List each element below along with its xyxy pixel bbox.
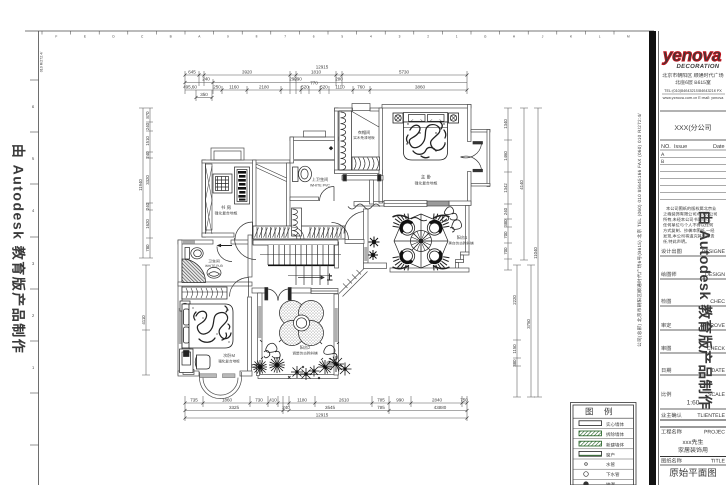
svg-text:xxx先生: xxx先生 (682, 438, 703, 446)
svg-text:11940: 11940 (138, 179, 143, 191)
svg-text:公司(总部) 北京市朝阳区顺通时代广场6号(B615) 北: 公司(总部) 北京市朝阳区顺通时代广场6号(B615) 北京 TEL (060)… (637, 113, 642, 347)
svg-text:1810: 1810 (311, 70, 322, 75)
svg-text:1160: 1160 (229, 85, 239, 90)
svg-text:410: 410 (269, 398, 277, 403)
svg-text:北京市朝阳区 顺通时代广场: 北京市朝阳区 顺通时代广场 (662, 72, 723, 79)
svg-text:强化复合地板: 强化复合地板 (218, 359, 240, 364)
svg-text:书 房: 书 房 (221, 205, 232, 210)
svg-text:XXX(分公司: XXX(分公司 (674, 124, 711, 132)
svg-text:比例: 比例 (661, 391, 671, 398)
svg-text:PROJEC: PROJEC (704, 430, 725, 436)
svg-text:1110: 1110 (335, 85, 345, 90)
svg-text:原始平面图: 原始平面图 (669, 468, 717, 479)
svg-text:www.yenova.com.cn E-mail: yen: www.yenova.com.cn E-mail: yenova (663, 96, 725, 100)
svg-text:TITLE: TITLE (711, 459, 726, 465)
svg-text:上卫生间: 上卫生间 (312, 177, 329, 182)
svg-text:DECORATION: DECORATION (677, 63, 720, 70)
svg-text:3920: 3920 (242, 70, 253, 75)
svg-text:780: 780 (145, 244, 150, 252)
svg-text:735: 735 (190, 398, 198, 403)
svg-text:520: 520 (320, 85, 328, 90)
svg-text:衣帽间: 衣帽间 (358, 130, 371, 135)
svg-text:L: L (599, 35, 601, 39)
svg-text:6: 6 (313, 35, 315, 39)
svg-text:窗户: 窗户 (606, 453, 615, 458)
svg-text:240: 240 (145, 202, 150, 210)
svg-text:强化复合地板: 强化复合地板 (215, 211, 238, 216)
svg-text:380: 380 (503, 219, 508, 227)
svg-text:F: F (55, 35, 57, 39)
svg-text:4: 4 (370, 35, 372, 39)
svg-text:阳台1: 阳台1 (457, 235, 468, 240)
svg-text:yenova: yenova (662, 45, 722, 65)
svg-text:9: 9 (227, 35, 229, 39)
svg-text:4140: 4140 (519, 180, 524, 190)
svg-text:由 Autodesk 教育版产品制作: 由 Autodesk 教育版产品制作 (11, 144, 27, 355)
svg-text:黑白仿古砖斜铺: 黑白仿古砖斜铺 (448, 241, 474, 246)
svg-text:240: 240 (202, 77, 210, 82)
svg-text:拆除墙体: 拆除墙体 (606, 432, 624, 437)
svg-text:1510: 1510 (145, 136, 150, 146)
svg-text:业主确认: 业主确认 (661, 412, 683, 419)
svg-text:770: 770 (310, 81, 318, 86)
svg-text:4110: 4110 (141, 315, 146, 325)
svg-text:例: 例 (604, 407, 613, 417)
svg-text:2610: 2610 (339, 398, 350, 403)
svg-text:290: 290 (294, 77, 302, 82)
svg-text:E: E (84, 35, 86, 39)
svg-text:强化复合地板: 强化复合地板 (415, 181, 438, 186)
svg-text:TEL:(010)84643215/84643216 FX: TEL:(010)84643215/84643216 FX (664, 89, 722, 93)
svg-text:新建墙体: 新建墙体 (606, 442, 624, 447)
svg-text:下水管: 下水管 (606, 472, 620, 477)
svg-text:设计出图: 设计出图 (661, 248, 682, 255)
svg-text:3860: 3860 (415, 85, 426, 90)
svg-text:WHITE PVC: WHITE PVC (310, 184, 330, 188)
svg-text:实木免漆地板: 实木免漆地板 (353, 135, 375, 140)
svg-text:卫生间: 卫生间 (208, 259, 220, 264)
svg-text:调整仿古砖斜铺: 调整仿古砖斜铺 (292, 351, 318, 356)
svg-text:645: 645 (188, 70, 196, 75)
svg-text:240: 240 (282, 405, 290, 410)
svg-text:3545: 3545 (325, 405, 336, 410)
svg-text:2840: 2840 (432, 398, 443, 403)
svg-text:12915: 12915 (316, 413, 329, 418)
svg-text:350: 350 (200, 92, 208, 97)
svg-text:工程名称: 工程名称 (661, 429, 682, 436)
svg-text:阳台2: 阳台2 (300, 345, 311, 350)
svg-text:任,特此声明。: 任,特此声明。 (663, 239, 689, 244)
svg-text:43880: 43880 (434, 405, 447, 410)
svg-text:3: 3 (399, 35, 401, 39)
svg-text:3325: 3325 (229, 405, 240, 410)
svg-text:1860: 1860 (222, 398, 233, 403)
svg-text:11040: 11040 (533, 247, 538, 259)
svg-text:240: 240 (503, 207, 508, 215)
svg-text:750: 750 (460, 398, 468, 403)
svg-text:次卧M: 次卧M (223, 353, 235, 358)
svg-text:2180: 2180 (259, 85, 270, 90)
svg-text:水管: 水管 (606, 462, 615, 467)
svg-text:240: 240 (145, 122, 150, 130)
svg-text:1620: 1620 (145, 219, 150, 229)
svg-text:审定: 审定 (661, 322, 671, 329)
svg-text:DATE: DATE (712, 368, 726, 374)
svg-text:主 卧: 主 卧 (421, 175, 432, 180)
svg-text:WHITE.PUR: WHITE.PUR (205, 264, 224, 268)
svg-text:日期: 日期 (661, 367, 671, 374)
svg-text:1180: 1180 (297, 398, 307, 403)
svg-text:绘图师: 绘图师 (661, 271, 677, 278)
svg-text:495,60: 495,60 (183, 85, 197, 90)
svg-text:北座6层 B615室: 北座6层 B615室 (675, 79, 711, 86)
svg-text:3750: 3750 (526, 319, 531, 329)
svg-text:1150: 1150 (512, 344, 517, 354)
svg-text:785: 785 (377, 405, 385, 410)
svg-text:280: 280 (335, 77, 343, 82)
svg-text:1: 1 (456, 35, 458, 39)
svg-text:1340: 1340 (503, 119, 508, 129)
svg-text:010 R/272:4/: 010 R/272:4/ (40, 52, 44, 73)
svg-text:TLIENTELE: TLIENTELE (697, 413, 725, 419)
svg-text:870: 870 (145, 111, 150, 119)
svg-text:7: 7 (284, 35, 286, 39)
svg-text:730: 730 (255, 398, 263, 403)
svg-text:B: B (170, 35, 172, 39)
svg-text:5730: 5730 (399, 70, 410, 75)
svg-text:图纸名称: 图纸名称 (661, 458, 682, 465)
svg-text:700: 700 (503, 231, 508, 239)
svg-text:M: M (627, 35, 630, 39)
svg-text:Issue: Issue (674, 144, 687, 150)
svg-text:785: 785 (377, 398, 385, 403)
svg-text:NO.: NO. (661, 144, 671, 150)
svg-text:检图: 检图 (661, 298, 671, 305)
svg-text:2: 2 (427, 35, 429, 39)
svg-text:家居装饰用: 家居装饰用 (678, 446, 708, 454)
svg-text:1460: 1460 (503, 151, 508, 161)
svg-text:990: 990 (396, 398, 404, 403)
svg-text:760: 760 (357, 85, 365, 90)
svg-text:8: 8 (256, 35, 258, 39)
svg-text:3320: 3320 (145, 175, 150, 185)
svg-text:380: 380 (512, 359, 517, 367)
svg-text:审图: 审图 (661, 345, 671, 352)
svg-text:2220: 2220 (512, 295, 517, 305)
svg-text:240: 240 (145, 151, 150, 159)
svg-text:700: 700 (503, 247, 508, 255)
svg-text:图: 图 (585, 407, 594, 417)
svg-text:520: 520 (301, 85, 309, 90)
svg-text:250: 250 (213, 85, 221, 90)
svg-text:实心墙体: 实心墙体 (606, 422, 624, 427)
svg-text:5: 5 (341, 35, 343, 39)
svg-text:1342: 1342 (503, 183, 508, 193)
svg-text:由 Autodesk 教育版产品制作: 由 Autodesk 教育版产品制作 (696, 210, 713, 409)
svg-text:Date: Date (713, 144, 725, 150)
